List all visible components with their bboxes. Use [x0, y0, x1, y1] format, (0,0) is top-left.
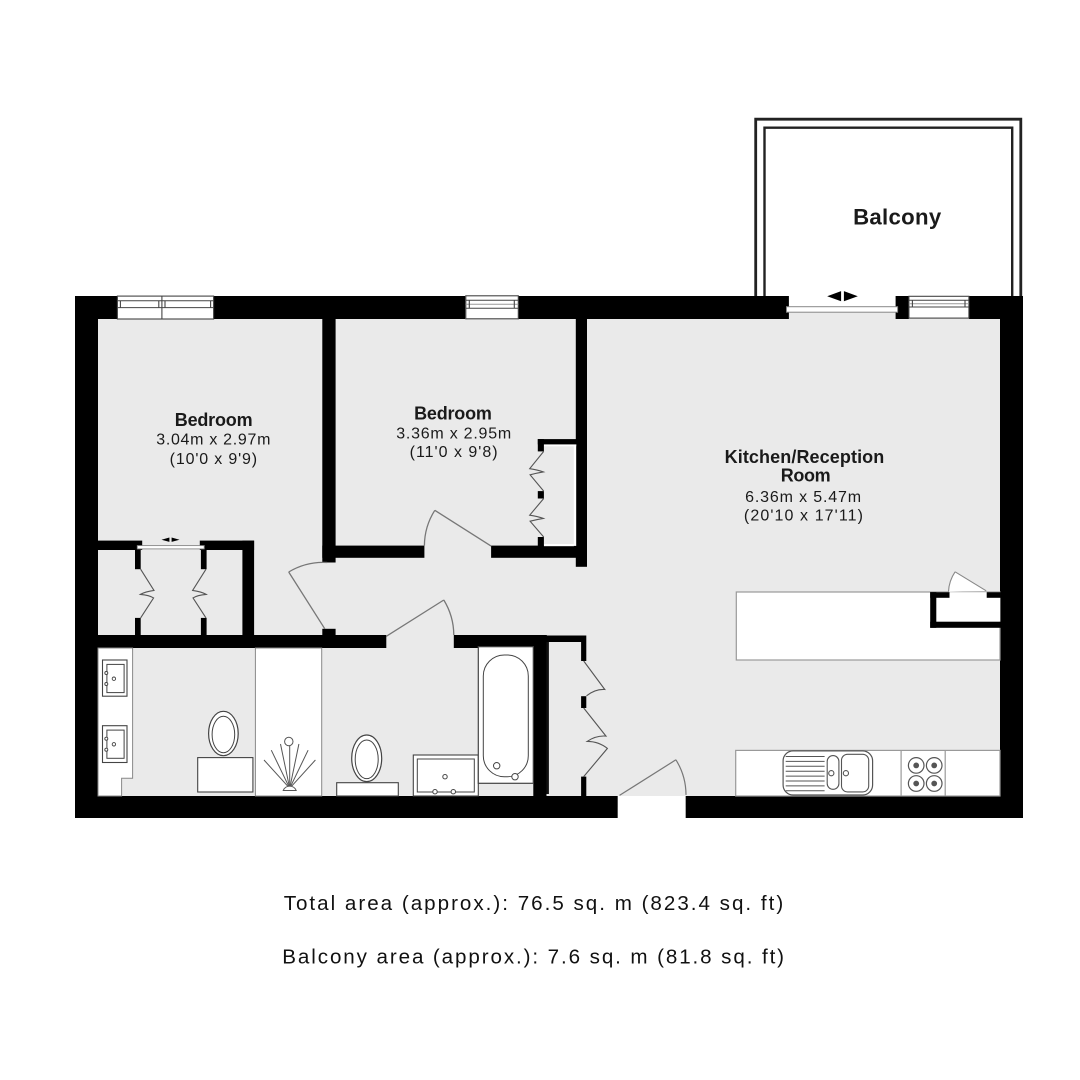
svg-text:Total area (approx.): 76.5 sq.: Total area (approx.): 76.5 sq. m (823.4 … — [284, 892, 786, 915]
svg-text:Kitchen/Reception: Kitchen/Reception — [725, 447, 885, 467]
svg-text:Balcony: Balcony — [853, 204, 942, 229]
svg-text:Bedroom: Bedroom — [175, 410, 253, 430]
svg-text:(10'0 x 9'9): (10'0 x 9'9) — [170, 451, 258, 468]
svg-text:Bedroom: Bedroom — [414, 403, 492, 423]
svg-text:(11'0 x 9'8): (11'0 x 9'8) — [410, 444, 499, 461]
svg-text:Room: Room — [781, 466, 831, 486]
svg-text:(20'10 x 17'11): (20'10 x 17'11) — [744, 508, 864, 525]
svg-text:6.36m x 5.47m: 6.36m x 5.47m — [745, 489, 862, 506]
svg-text:3.36m x 2.95m: 3.36m x 2.95m — [396, 426, 512, 443]
svg-text:3.04m x 2.97m: 3.04m x 2.97m — [156, 431, 271, 448]
svg-text:Balcony area (approx.): 7.6 sq: Balcony area (approx.): 7.6 sq. m (81.8 … — [282, 945, 786, 968]
